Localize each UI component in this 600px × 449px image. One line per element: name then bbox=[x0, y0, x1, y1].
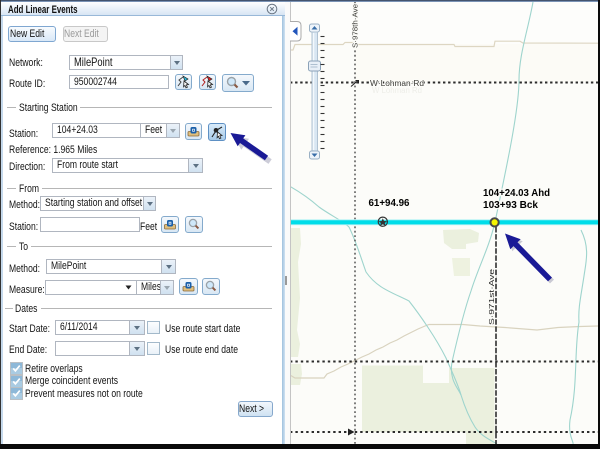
svg-text:S·978th·Ave: S·978th·Ave bbox=[352, 4, 359, 48]
svg-text:104+24.03 Ahd: 104+24.03 Ahd bbox=[483, 188, 550, 199]
svg-text:103+93 Bck: 103+93 Bck bbox=[483, 200, 538, 211]
svg-text:S·971st·Ave: S·971st·Ave bbox=[489, 269, 496, 325]
svg-text:61+94.96: 61+94.96 bbox=[369, 198, 410, 209]
svg-text:W Lohman Rd: W Lohman Rd bbox=[372, 86, 422, 95]
